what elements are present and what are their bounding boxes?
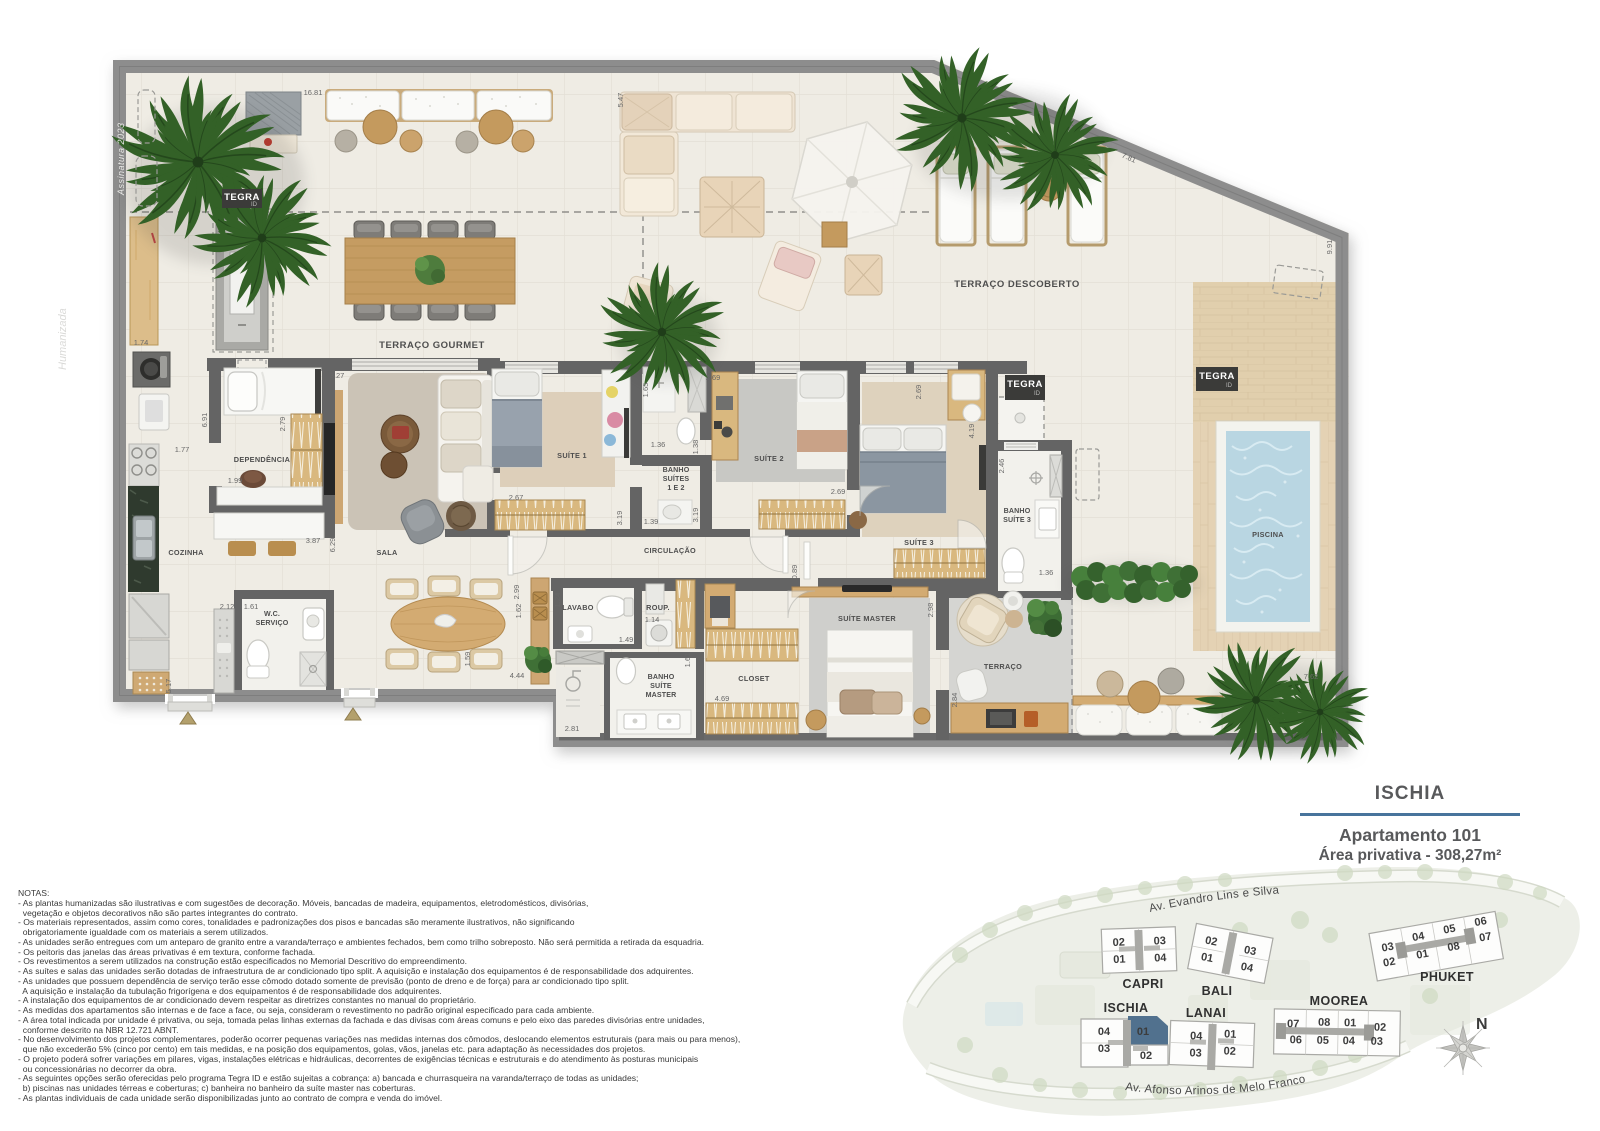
- svg-text:Assinatura 2023: Assinatura 2023: [116, 122, 126, 196]
- svg-text:SUÍTE MASTER: SUÍTE MASTER: [838, 614, 896, 623]
- svg-text:ID: ID: [1226, 383, 1233, 389]
- svg-text:5.17: 5.17: [164, 679, 173, 694]
- svg-text:1.74: 1.74: [134, 338, 149, 347]
- svg-text:4.19: 4.19: [967, 424, 976, 439]
- svg-text:SERVIÇO: SERVIÇO: [256, 619, 289, 627]
- svg-text:2.69: 2.69: [831, 487, 846, 496]
- svg-text:5.47: 5.47: [616, 93, 625, 108]
- svg-text:2.81: 2.81: [565, 724, 580, 733]
- svg-text:4.69: 4.69: [715, 694, 730, 703]
- svg-text:1.59: 1.59: [463, 652, 472, 667]
- svg-text:1 E 2: 1 E 2: [667, 484, 684, 492]
- svg-text:1.39: 1.39: [644, 517, 659, 526]
- svg-text:16.81: 16.81: [304, 88, 323, 97]
- svg-text:1.77: 1.77: [175, 445, 190, 454]
- svg-text:3.87: 3.87: [306, 536, 321, 545]
- svg-text:1.38: 1.38: [691, 440, 700, 455]
- svg-text:COZINHA: COZINHA: [168, 548, 204, 557]
- svg-text:2.84: 2.84: [950, 693, 959, 708]
- svg-text:0.89: 0.89: [790, 565, 799, 580]
- svg-text:Humanizada: Humanizada: [57, 308, 69, 370]
- svg-text:1.61: 1.61: [244, 602, 259, 611]
- svg-text:1.99: 1.99: [228, 476, 243, 485]
- svg-text:TEGRA: TEGRA: [1199, 371, 1235, 382]
- svg-text:SUÍTE 3: SUÍTE 3: [1003, 515, 1031, 524]
- svg-text:BANHO: BANHO: [1004, 507, 1031, 515]
- svg-text:1.24: 1.24: [553, 593, 562, 608]
- svg-text:6.91: 6.91: [200, 413, 209, 428]
- svg-text:ROUP.: ROUP.: [646, 603, 670, 612]
- svg-text:PISCINA: PISCINA: [1252, 530, 1284, 539]
- svg-text:ID: ID: [1034, 391, 1041, 397]
- svg-text:1.65: 1.65: [641, 383, 650, 398]
- svg-text:BANHO: BANHO: [663, 466, 690, 474]
- svg-text:1.49: 1.49: [619, 635, 634, 644]
- svg-text:CIRCULAÇÃO: CIRCULAÇÃO: [644, 546, 696, 555]
- svg-text:SUÍTES: SUÍTES: [663, 474, 690, 483]
- svg-text:DEPENDÊNCIA: DEPENDÊNCIA: [234, 455, 291, 464]
- svg-text:SUÍTE 2: SUÍTE 2: [754, 454, 784, 463]
- svg-text:2.12: 2.12: [220, 602, 235, 611]
- svg-text:7.62: 7.62: [1304, 672, 1319, 681]
- svg-text:4.44: 4.44: [510, 671, 525, 680]
- svg-text:3.19: 3.19: [615, 511, 624, 526]
- svg-text:1.36: 1.36: [651, 440, 666, 449]
- svg-text:1.61: 1.61: [683, 653, 692, 668]
- svg-text:6.29: 6.29: [328, 538, 337, 553]
- svg-text:2.69: 2.69: [914, 385, 923, 400]
- svg-text:W.C.: W.C.: [264, 610, 280, 618]
- svg-text:3.27: 3.27: [330, 371, 345, 380]
- svg-text:CLOSET: CLOSET: [738, 674, 770, 683]
- svg-text:3.19: 3.19: [691, 508, 700, 523]
- svg-text:2.98: 2.98: [926, 603, 935, 618]
- svg-text:MASTER: MASTER: [646, 691, 677, 699]
- svg-text:2.79: 2.79: [278, 417, 287, 432]
- svg-text:LAVABO: LAVABO: [562, 603, 594, 612]
- svg-text:2.46: 2.46: [997, 459, 1006, 474]
- svg-text:2.67: 2.67: [509, 493, 524, 502]
- svg-text:2.99: 2.99: [512, 585, 521, 600]
- svg-text:2.69: 2.69: [706, 373, 721, 382]
- svg-text:ID: ID: [251, 202, 258, 208]
- svg-text:SALA: SALA: [376, 548, 397, 557]
- svg-text:1.14: 1.14: [645, 615, 660, 624]
- svg-text:1.36: 1.36: [1039, 568, 1054, 577]
- svg-text:TERRAÇO GOURMET: TERRAÇO GOURMET: [379, 340, 485, 351]
- svg-text:9.91: 9.91: [1325, 240, 1334, 255]
- svg-text:SUÍTE: SUÍTE: [650, 681, 672, 690]
- svg-text:TERRAÇO DESCOBERTO: TERRAÇO DESCOBERTO: [954, 279, 1079, 290]
- svg-text:TEGRA: TEGRA: [1007, 379, 1043, 390]
- svg-text:SUÍTE 1: SUÍTE 1: [557, 451, 587, 460]
- svg-text:BANHO: BANHO: [648, 673, 675, 681]
- svg-text:TERRAÇO: TERRAÇO: [984, 662, 1022, 671]
- svg-text:SUÍTE 3: SUÍTE 3: [904, 538, 934, 547]
- svg-text:1.62: 1.62: [514, 604, 523, 619]
